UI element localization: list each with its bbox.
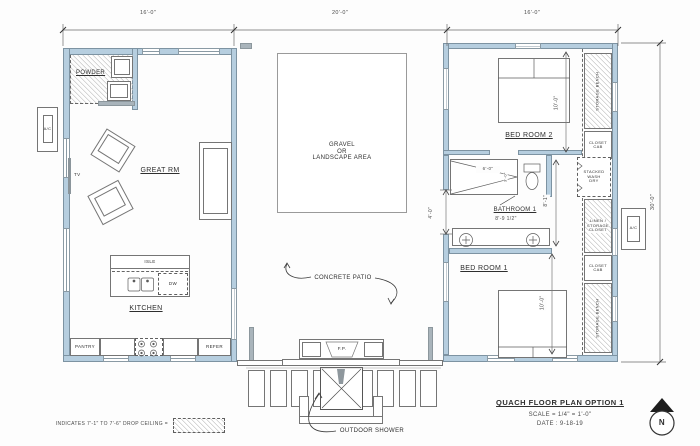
bedroom1-label: BED ROOM 1 [456, 264, 512, 274]
bedroom2-depth-dim: 10'-0" [544, 98, 570, 107]
fireplace-label: F.P. [331, 345, 353, 353]
shower-screen-wall [299, 416, 383, 424]
sheet-date: DATE : 9-18-19 [478, 420, 642, 428]
sofa-cushions [203, 148, 228, 214]
bedroom1-depth-dim: 10'-0" [530, 298, 556, 307]
storage-bench: STORAGE BENCH [584, 53, 612, 129]
window [170, 355, 196, 362]
legend-note: INDICATES 7'-1" TO 7'-6" DROP CEILING = [20, 422, 168, 430]
powder-toilet-seat [110, 84, 128, 98]
window [178, 48, 220, 55]
bedroom1-partition-wall [449, 248, 552, 254]
hall-opening-dim: 4'-0" [419, 208, 445, 217]
ac-label: A/C [621, 224, 646, 232]
wall-stub [240, 43, 252, 49]
island-label: ISLE [138, 259, 162, 266]
window [612, 296, 618, 322]
left-wing-west-wall [63, 48, 70, 362]
window [443, 262, 449, 302]
concrete-patio-label: CONCRETE PATIO [311, 273, 375, 283]
dishwasher: DW [158, 273, 188, 295]
fireplace-wood-box [302, 342, 321, 357]
armchair [90, 128, 135, 172]
bathroom-east-wall [546, 155, 552, 197]
right-wing-west-wall [443, 155, 449, 190]
refrigerator: REFER [198, 338, 231, 356]
dim-overall-height: 30'-0" [637, 198, 669, 207]
dim-top-left: 16'-0" [100, 9, 196, 18]
left-wing-south-wall [63, 355, 237, 362]
powder-door [98, 101, 135, 106]
linen-storage-closet: LINEN / STORAGE CLOSET [584, 199, 612, 253]
gravel-label: GRAVEL OR LANDSCAPE AREA [287, 135, 397, 169]
sheet-scale: SCALE = 1/4" = 1'-0" [478, 411, 642, 419]
bathroom-width-dim: 8'-9 1/2" [486, 216, 526, 224]
great-room-label: GREAT RM [136, 166, 184, 176]
fireplace-hearth [282, 359, 400, 366]
window [612, 228, 618, 256]
closet-cabinet: CLOSET CAB [584, 255, 612, 281]
dim-top-middle: 20'-0" [292, 9, 388, 18]
window [612, 82, 618, 112]
base-cabinet [163, 338, 198, 356]
tv-icon [68, 158, 71, 194]
window [103, 355, 129, 362]
powder-label: POWDER [76, 70, 105, 77]
drop-ceiling-dashed-line [582, 49, 583, 355]
range [135, 338, 163, 356]
closet-cabinet: CLOSET CAB [584, 131, 612, 159]
powder-sink-basin [114, 59, 130, 75]
gravel-bed [277, 53, 407, 213]
ac-label: A/C [37, 125, 58, 133]
shower-depth-dim: 3'-0" [497, 174, 515, 181]
shower-width-dim: 6'-0" [476, 166, 500, 173]
tv-label: TV [74, 173, 80, 178]
bedroom2-label: BED ROOM 2 [503, 131, 555, 141]
window [63, 228, 70, 292]
armchair [87, 180, 133, 226]
base-cabinet [100, 338, 135, 356]
sheet-title: QUACH FLOOR PLAN OPTION 1 [478, 398, 642, 409]
bathroom-height-dim: 8'-1" [534, 196, 560, 205]
outdoor-shower-pan [320, 367, 363, 410]
dim-top-right: 16'-0" [484, 9, 580, 18]
island-overhang-dashed [112, 271, 188, 272]
window [515, 43, 541, 49]
window [142, 48, 160, 55]
legend-swatch [173, 418, 225, 433]
storage-bench: STORAGE BENCH [584, 283, 612, 353]
vanity [452, 228, 550, 246]
bed [498, 58, 570, 123]
bathroom1-label: BATHROOM 1 [488, 206, 542, 215]
outdoor-shower-label: OUTDOOR SHOWER [337, 427, 407, 436]
kitchen-label: KITCHEN [126, 304, 166, 314]
deck-plank [420, 370, 437, 407]
fireplace-wood-box [364, 342, 383, 357]
north-arrow: N [644, 396, 680, 438]
window [443, 68, 449, 110]
patio-door [231, 288, 237, 340]
island-counter-edge [110, 268, 190, 269]
stacked-washer-dryer: STACKED WASH DRY [577, 157, 611, 197]
floor-plan-sheet: 16'-0" 20'-0" 16'-0" 30'-0" POWDER TV GR… [0, 0, 700, 446]
deck-plank [399, 370, 416, 407]
deck-plank [270, 370, 287, 407]
deck-plank [248, 370, 265, 407]
bedroom2-partition-wall [443, 150, 490, 155]
pantry: PANTRY [70, 338, 100, 356]
north-label: N [644, 413, 680, 433]
